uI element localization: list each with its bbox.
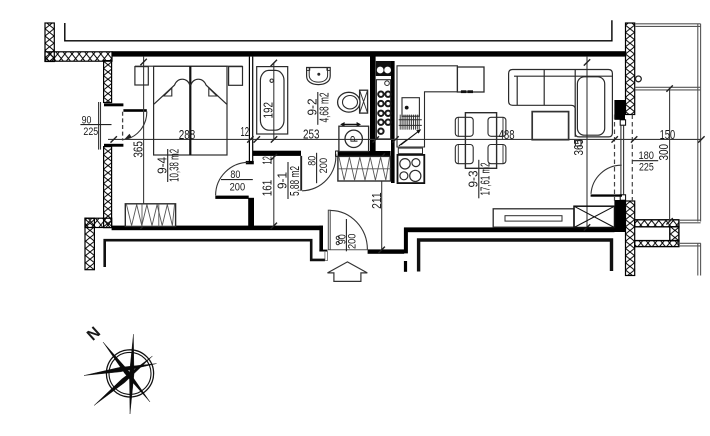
svg-text:4,68 m2: 4,68 m2 xyxy=(318,92,332,122)
svg-text:P: P xyxy=(348,135,360,142)
svg-text:17,61 m2: 17,61 m2 xyxy=(479,162,493,195)
svg-text:288: 288 xyxy=(179,127,196,142)
svg-text:225: 225 xyxy=(639,161,654,173)
svg-text:488: 488 xyxy=(499,127,515,142)
svg-text:12: 12 xyxy=(260,156,275,165)
svg-text:365: 365 xyxy=(571,139,586,156)
svg-text:192: 192 xyxy=(261,102,276,119)
svg-text:10,38 m2: 10,38 m2 xyxy=(168,149,182,182)
svg-text:211: 211 xyxy=(369,192,384,209)
svg-text:200: 200 xyxy=(230,181,246,193)
svg-text:225: 225 xyxy=(83,126,98,138)
svg-text:200: 200 xyxy=(346,234,358,250)
svg-text:200: 200 xyxy=(318,158,330,174)
svg-text:12: 12 xyxy=(241,124,250,139)
svg-text:161: 161 xyxy=(259,180,274,197)
svg-text:150: 150 xyxy=(660,127,676,142)
svg-text:90: 90 xyxy=(82,115,92,127)
svg-text:80: 80 xyxy=(230,169,240,181)
svg-text:180: 180 xyxy=(638,150,654,162)
svg-text:5,88 m2: 5,88 m2 xyxy=(288,166,302,196)
svg-text:253: 253 xyxy=(303,127,320,142)
svg-text:80: 80 xyxy=(307,156,319,166)
svg-text:300: 300 xyxy=(656,144,671,161)
svg-text:365: 365 xyxy=(130,141,145,158)
